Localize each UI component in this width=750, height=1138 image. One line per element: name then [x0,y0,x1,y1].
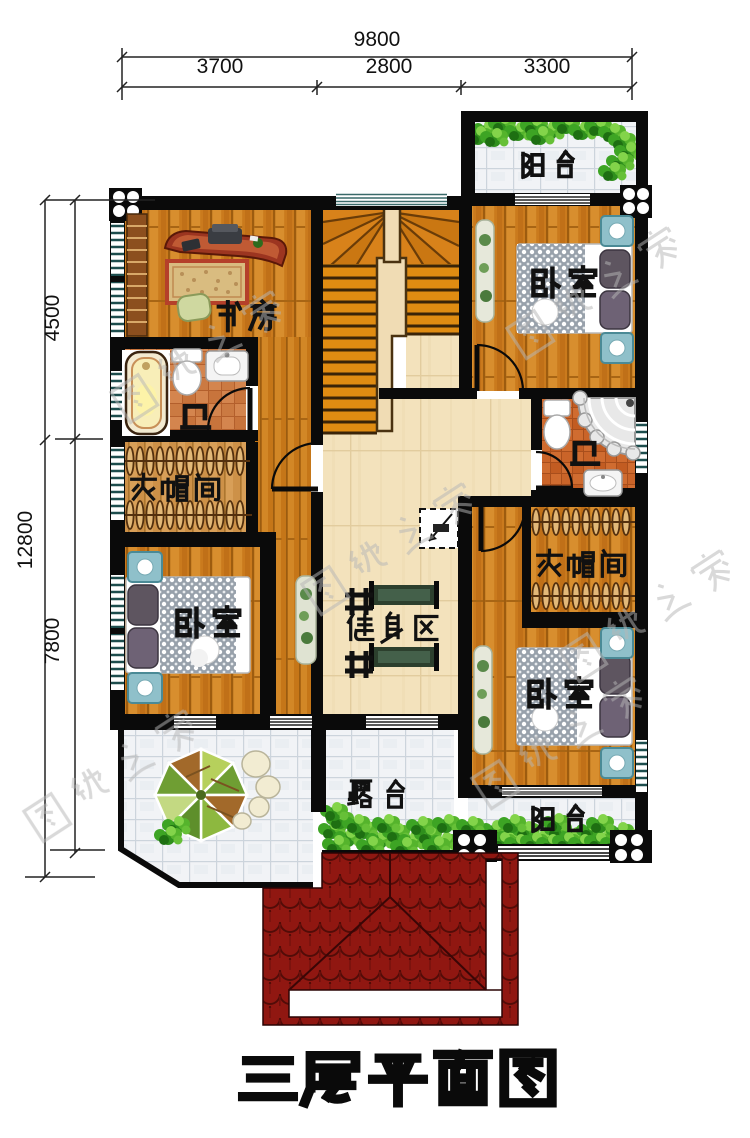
svg-text:9800: 9800 [354,28,401,51]
svg-text:4500: 4500 [41,295,64,342]
svg-text:3700: 3700 [197,55,244,78]
svg-text:3300: 3300 [524,55,571,78]
svg-text:12800: 12800 [14,511,37,569]
svg-text:2800: 2800 [366,55,413,78]
svg-text:7800: 7800 [41,618,64,665]
